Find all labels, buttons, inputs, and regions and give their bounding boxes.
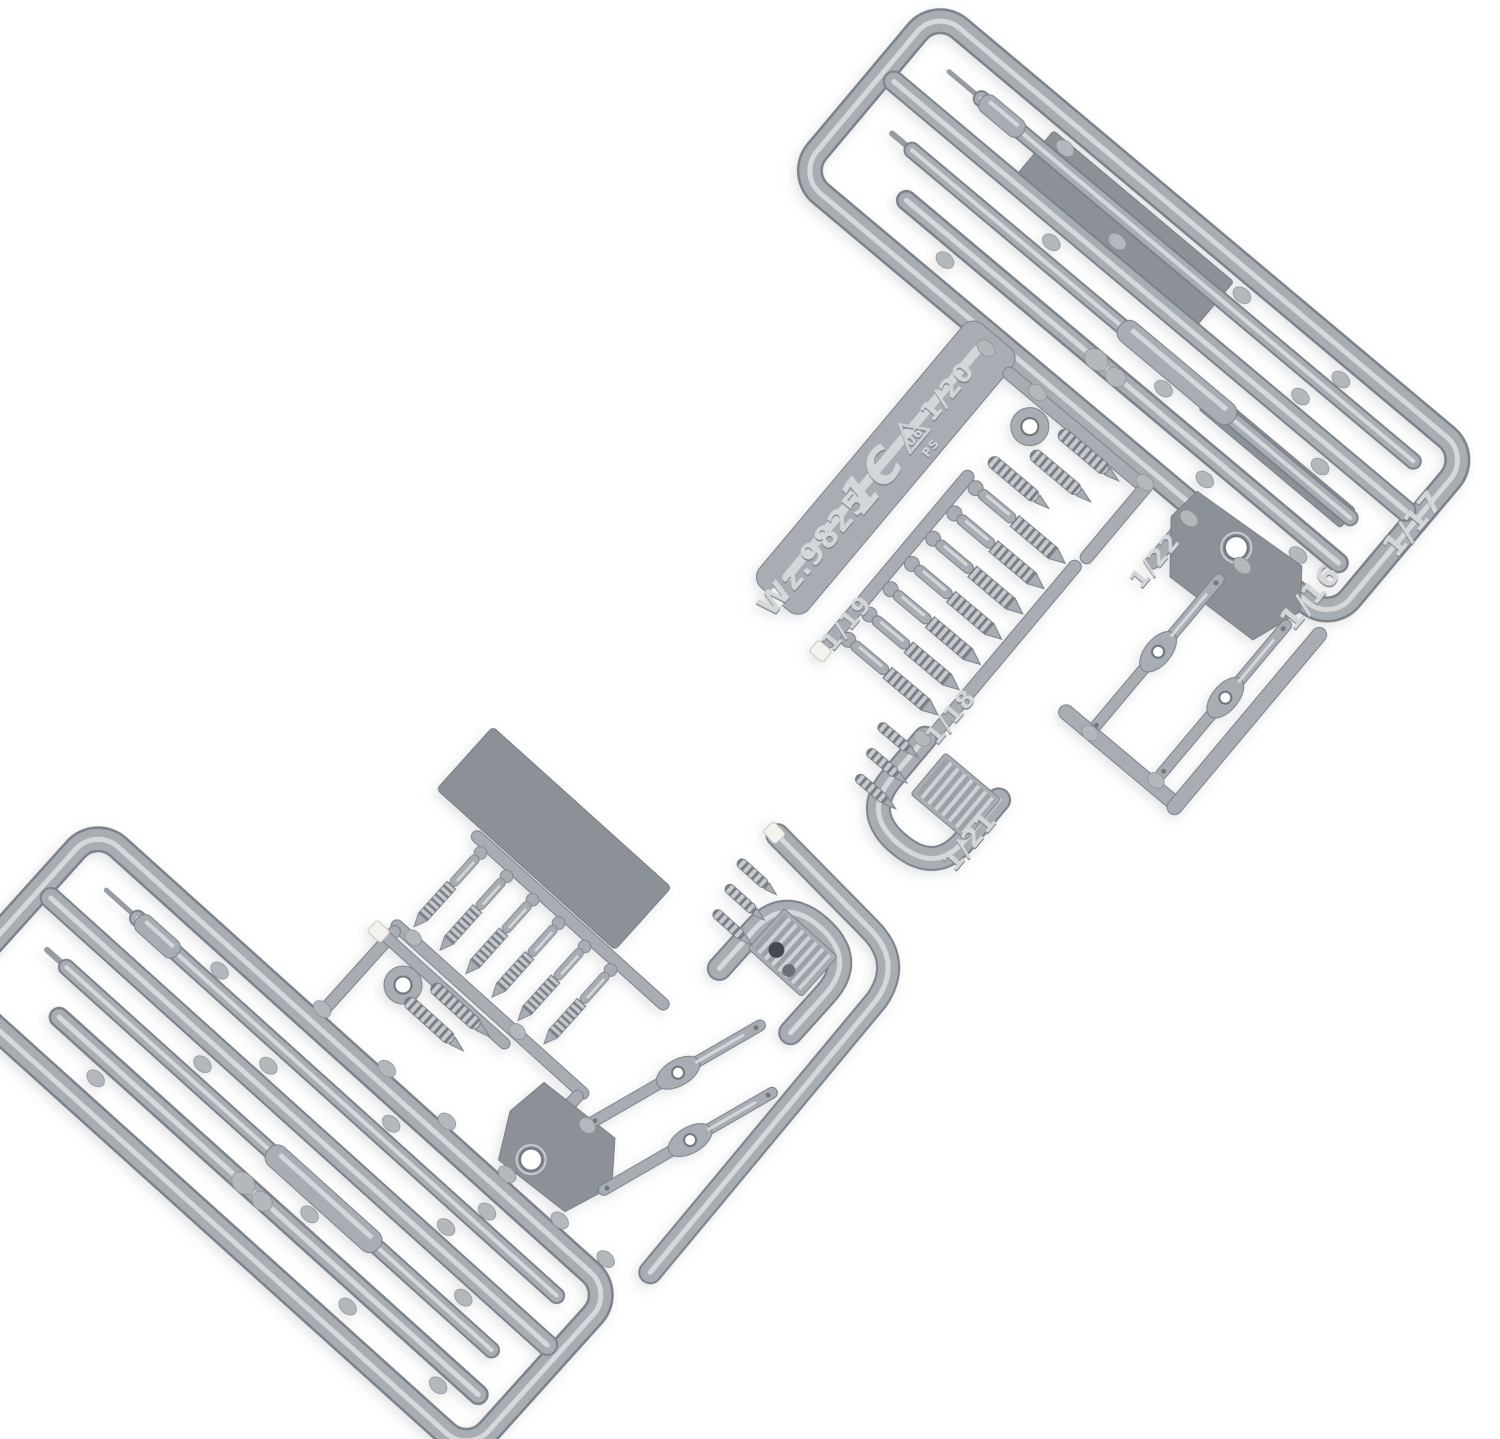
sprue-section-top-right: Wz.9825 1C 06 PS 1/20 1/19 1/18 1/22 1/2… — [510, 9, 1483, 976]
screw-part — [735, 857, 780, 899]
photo-canvas: Wz.9825 1C 06 PS 1/20 1/19 1/18 1/22 1/2… — [0, 0, 1500, 1439]
link-rod-part — [581, 1011, 772, 1136]
ladder-frame — [798, 9, 1470, 622]
sprue-photo: Wz.9825 1C 06 PS 1/20 1/19 1/18 1/22 1/2… — [0, 0, 1500, 1439]
sprue-section-bottom-left — [0, 487, 930, 1439]
screw-part — [723, 882, 768, 924]
parts-cluster — [681, 300, 1351, 969]
